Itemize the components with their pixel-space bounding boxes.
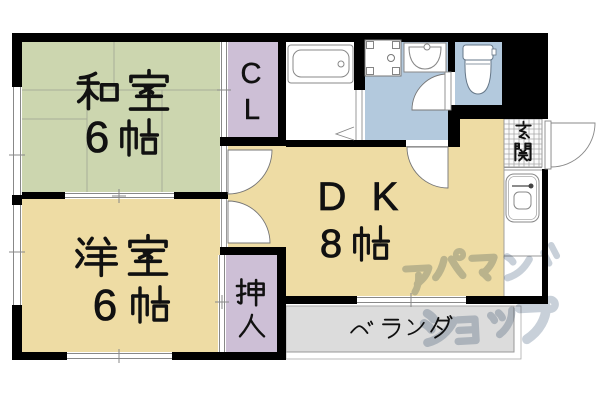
svg-text:8: 8 — [320, 222, 342, 266]
svg-text:6: 6 — [85, 113, 109, 162]
svg-text:K: K — [372, 175, 399, 219]
svg-text:L: L — [244, 94, 260, 126]
svg-text:C: C — [241, 58, 262, 90]
svg-text:6: 6 — [93, 281, 117, 330]
svg-text:D: D — [318, 175, 347, 219]
